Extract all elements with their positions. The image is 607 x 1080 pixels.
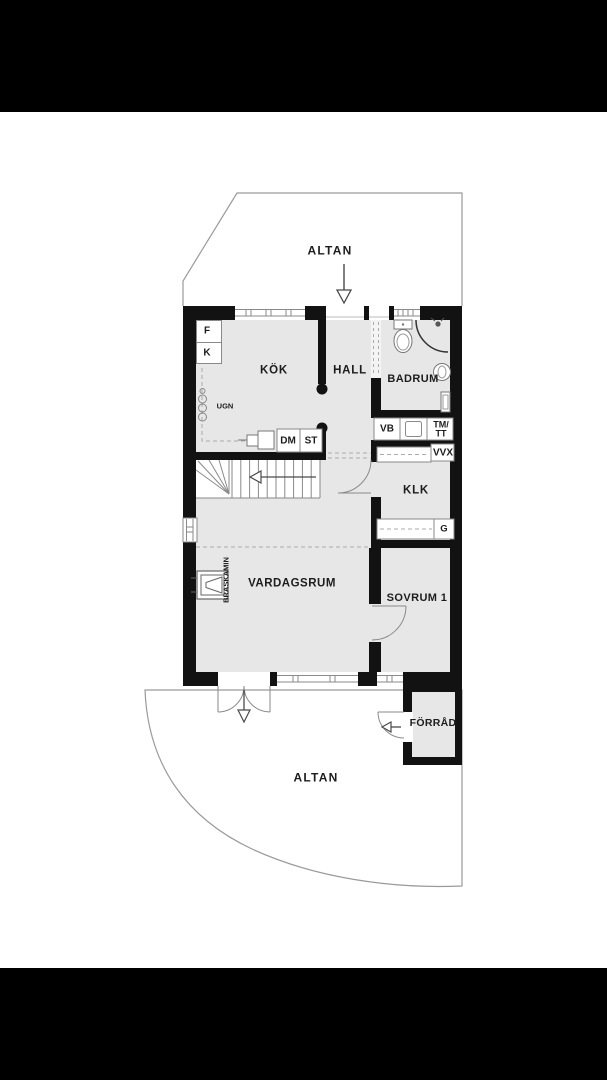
- floor-plan-screenshot: ALTANKÖKHALLBADRUMKLKVARDAGSRUMSOVRUM 1F…: [0, 0, 607, 1080]
- floor-plan-drawing: [0, 0, 607, 1080]
- upper-terrace: [183, 193, 462, 306]
- klk-bottom-wall: [371, 540, 450, 548]
- bedroom-left-wall-top: [369, 548, 381, 604]
- entry-sidelight: [369, 306, 389, 320]
- fireplace-icon: [191, 571, 228, 599]
- kitchen-window: [235, 306, 305, 320]
- vvx-band: [377, 444, 454, 462]
- bathroom-sink-icon: [434, 364, 451, 381]
- bathroom-passage: [371, 320, 381, 378]
- dishwasher-box: [277, 429, 300, 452]
- kitchen-stair-wall: [196, 452, 326, 460]
- fridge-box: [197, 321, 222, 343]
- g-wardrobe-band: [377, 519, 454, 539]
- stairs: [196, 460, 320, 498]
- bedroom-left-wall-bottom: [369, 642, 381, 672]
- bathroom-cabinet-icon: [441, 392, 450, 412]
- terrace-double-door-opening: [218, 672, 270, 686]
- forrad-floor: [412, 692, 455, 757]
- tm-tt-box: [427, 418, 453, 440]
- living-room-side-window: [183, 518, 197, 542]
- toilet-icon: [394, 320, 412, 353]
- freezer-box: [197, 343, 222, 364]
- entry-door-opening: [326, 306, 364, 320]
- wall-post: [317, 384, 328, 395]
- bathroom-window: [394, 306, 420, 320]
- st-box: [300, 429, 322, 452]
- hall-stub-wall-upper: [318, 320, 326, 384]
- living-room-window: [277, 672, 358, 686]
- bathroom-bottom-wall: [371, 410, 450, 418]
- bedroom-window: [377, 672, 403, 686]
- vb-box: [374, 418, 400, 440]
- washing-machine-icon: [406, 422, 422, 437]
- laundry-row: [374, 418, 453, 440]
